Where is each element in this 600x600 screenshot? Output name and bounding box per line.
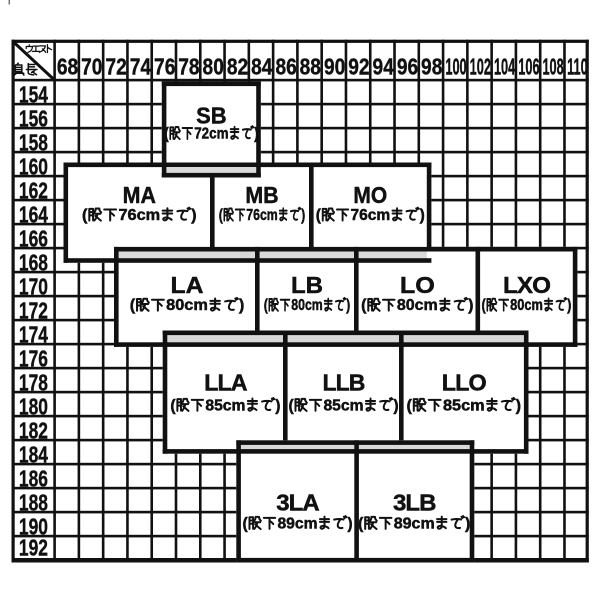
svg-text:158: 158 [19, 130, 48, 156]
svg-text:): ) [347, 515, 352, 532]
svg-text:(: ( [242, 515, 248, 532]
svg-text:LXO: LXO [503, 274, 551, 299]
svg-text:76cm: 76cm [118, 206, 160, 224]
svg-text:80cm: 80cm [291, 297, 322, 315]
svg-text:100: 100 [445, 53, 466, 79]
svg-text:178: 178 [19, 370, 48, 396]
svg-text:MB: MB [245, 182, 278, 208]
svg-text:82: 82 [227, 55, 248, 80]
svg-text:68: 68 [57, 55, 79, 80]
svg-text:182: 182 [19, 418, 48, 444]
svg-text:72cm: 72cm [194, 126, 228, 143]
svg-text:94: 94 [373, 55, 395, 80]
svg-text:85cm: 85cm [205, 397, 245, 414]
svg-text:164: 164 [19, 202, 48, 228]
svg-text:188: 188 [19, 490, 48, 516]
svg-text:LA: LA [171, 273, 204, 299]
svg-text:80cm: 80cm [510, 297, 543, 315]
svg-text:84: 84 [251, 55, 273, 80]
svg-text:): ) [465, 515, 470, 532]
svg-text:192: 192 [19, 535, 48, 561]
svg-text:184: 184 [19, 442, 48, 468]
svg-text:96: 96 [397, 55, 418, 80]
svg-text:(: ( [406, 396, 412, 414]
svg-text:104: 104 [494, 53, 516, 79]
svg-text:(: ( [82, 206, 88, 224]
svg-text:(: ( [164, 126, 169, 143]
svg-text:(: ( [316, 207, 322, 224]
svg-text:74: 74 [130, 55, 152, 80]
svg-text:): ) [516, 396, 521, 414]
svg-text:(: ( [219, 207, 223, 225]
svg-text:176: 176 [19, 346, 48, 372]
svg-text:76cm: 76cm [350, 207, 390, 224]
svg-text:174: 174 [19, 322, 48, 348]
svg-text:76cm: 76cm [246, 207, 277, 225]
svg-text:MA: MA [123, 182, 156, 208]
svg-text:): ) [567, 297, 571, 315]
svg-text:80cm: 80cm [166, 296, 208, 314]
svg-text:LLB: LLB [322, 370, 364, 396]
svg-text:70: 70 [81, 55, 102, 80]
svg-text:(: ( [264, 297, 268, 315]
svg-text:98: 98 [421, 55, 443, 80]
svg-text:): ) [275, 397, 280, 414]
svg-text:78: 78 [178, 55, 200, 80]
svg-text:89cm: 89cm [394, 515, 435, 532]
svg-text:156: 156 [19, 106, 48, 132]
svg-text:): ) [191, 206, 196, 224]
svg-text:(: ( [170, 397, 176, 414]
svg-text:86: 86 [275, 55, 296, 80]
svg-text:106: 106 [518, 53, 539, 79]
svg-text:76: 76 [154, 55, 175, 80]
svg-text:186: 186 [19, 466, 48, 492]
svg-text:LLA: LLA [204, 370, 248, 396]
svg-text:180: 180 [19, 394, 48, 420]
svg-text:MO: MO [353, 182, 387, 208]
svg-text:3LB: 3LB [393, 490, 436, 515]
svg-text:88: 88 [300, 55, 322, 80]
svg-text:(: ( [482, 297, 486, 315]
svg-text:): ) [468, 297, 473, 314]
svg-text:LO: LO [400, 273, 435, 299]
svg-text:154: 154 [19, 82, 48, 108]
svg-text:160: 160 [19, 154, 48, 180]
svg-text:): ) [301, 207, 305, 225]
svg-text:3LA: 3LA [276, 490, 319, 515]
svg-text:80: 80 [203, 55, 224, 80]
svg-text:110: 110 [567, 53, 588, 79]
svg-text:166: 166 [19, 226, 48, 252]
svg-text:(: ( [288, 397, 294, 414]
svg-text:(: ( [358, 515, 364, 532]
svg-text:LB: LB [291, 272, 323, 297]
svg-text:102: 102 [470, 53, 491, 79]
svg-text:80cm: 80cm [397, 297, 438, 314]
svg-text:172: 172 [19, 298, 48, 324]
svg-text:LLO: LLO [442, 370, 487, 396]
svg-text:89cm: 89cm [277, 515, 317, 532]
svg-text:): ) [393, 397, 398, 414]
svg-text:85cm: 85cm [323, 397, 363, 414]
svg-text:92: 92 [348, 55, 369, 80]
svg-text:): ) [346, 297, 350, 315]
svg-text:85cm: 85cm [443, 396, 485, 414]
svg-text:168: 168 [19, 250, 48, 276]
svg-text:90: 90 [324, 55, 345, 80]
svg-text:(: ( [361, 297, 367, 314]
svg-text:): ) [239, 296, 244, 314]
svg-text:162: 162 [19, 178, 48, 204]
svg-text:72: 72 [105, 55, 126, 80]
svg-text:108: 108 [542, 53, 563, 79]
svg-text:): ) [420, 207, 425, 224]
svg-text:): ) [254, 126, 259, 143]
svg-text:170: 170 [19, 274, 48, 300]
svg-text:(: ( [130, 296, 136, 314]
